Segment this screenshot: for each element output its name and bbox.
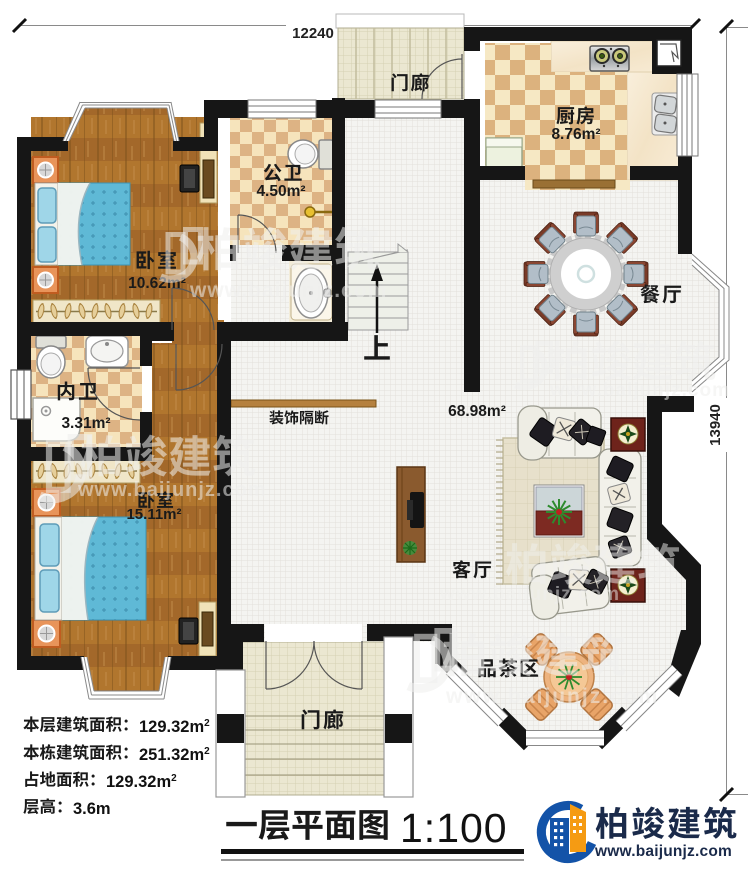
- svg-text:www.baijunjz.com: www.baijunjz.com: [445, 685, 659, 708]
- svg-text:www.baijunjz.com: www.baijunjz.com: [77, 479, 267, 501]
- svg-text:15.11m²: 15.11m²: [126, 506, 181, 523]
- svg-text:3.31m²: 3.31m²: [61, 415, 110, 432]
- svg-text:www.baijunjz.com: www.baijunjz.com: [189, 279, 387, 302]
- svg-text:www.baijunjz.com: www.baijunjz.com: [439, 584, 620, 605]
- svg-text:1:100: 1:100: [400, 805, 508, 851]
- svg-text:251.32m2: 251.32m2: [139, 746, 210, 764]
- svg-text:www.baijunjz.com: www.baijunjz.com: [594, 843, 732, 860]
- svg-text:129.32m2: 129.32m2: [106, 773, 177, 791]
- svg-text:4.50m²: 4.50m²: [256, 183, 305, 200]
- svg-text:68.98m²: 68.98m²: [448, 403, 506, 420]
- svg-text:www.baijunjz.com: www.baijunjz.com: [549, 380, 730, 401]
- svg-text:8.76m²: 8.76m²: [551, 126, 600, 143]
- svg-text:13940: 13940: [707, 404, 724, 446]
- svg-text:12240: 12240: [292, 25, 334, 42]
- svg-text:3.6m: 3.6m: [73, 800, 111, 818]
- svg-text:129.32m2: 129.32m2: [139, 718, 210, 736]
